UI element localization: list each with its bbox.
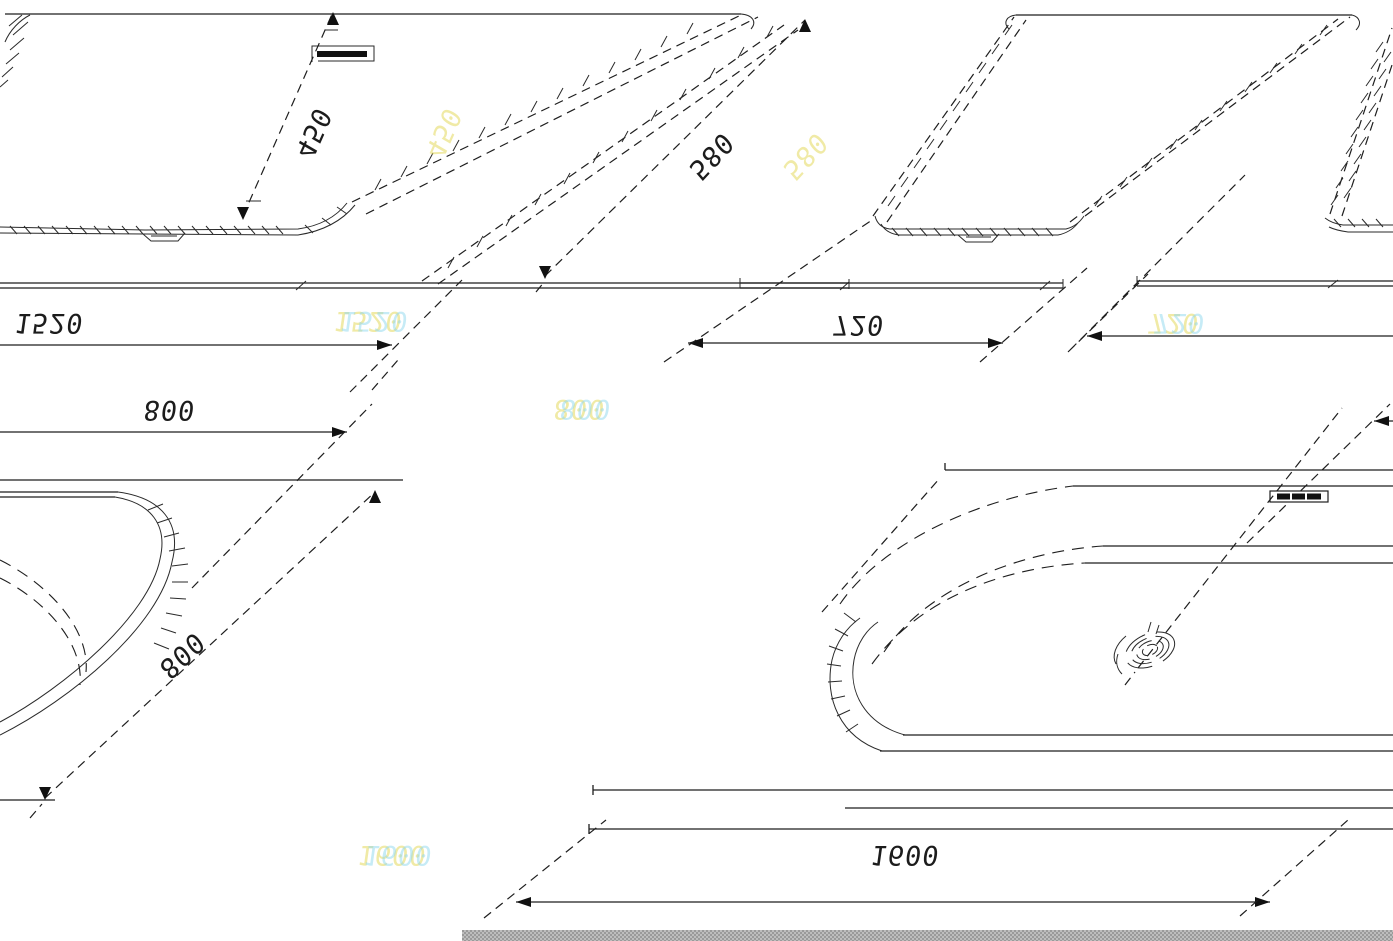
rim-edge-curl xyxy=(741,14,754,29)
dim-580-ghost: 580 xyxy=(777,125,833,186)
left-wall-ticks xyxy=(888,25,1012,206)
inner-rim-top xyxy=(1085,546,1393,563)
dim-1520-ghost-c: 1520 xyxy=(338,305,411,336)
floor-line xyxy=(0,283,849,288)
plan-corner-view: 800 800 800 800 xyxy=(0,393,614,818)
basin-shell-top xyxy=(0,203,347,230)
rim-curls xyxy=(1006,15,1360,30)
corner-curve-outer xyxy=(0,492,175,735)
plan-view: 1600 1600 1600 xyxy=(356,404,1393,918)
inner-rim-curves xyxy=(872,546,1103,664)
dim-800h-ghost-c: 800 xyxy=(558,393,614,424)
dim-800-vertical: 800 xyxy=(0,490,381,818)
dim-450-label: 450 xyxy=(289,101,337,164)
dim-580: 580 580 xyxy=(536,19,833,292)
wall-ticks-2 xyxy=(1344,52,1391,198)
dim-580-label: 580 xyxy=(683,125,739,186)
dim-1600: 1600 1600 1600 xyxy=(356,478,1348,918)
right-wall-band xyxy=(1070,17,1350,222)
dim-720: 720 720 720 xyxy=(664,220,1208,362)
dim-450-ghost: 450 xyxy=(419,101,467,164)
dim-720-ghost-c: 720 xyxy=(1152,307,1208,338)
dim-1600-label: 1600 xyxy=(869,839,942,870)
dim-720-label: 720 xyxy=(831,309,887,340)
end-wall-ticks-1 xyxy=(375,23,693,190)
dim-800v-label: 800 xyxy=(154,625,210,685)
rim-second-curve xyxy=(840,486,1073,604)
rim-bottom-lines xyxy=(589,785,1393,834)
overflow-slot-plan xyxy=(1270,491,1328,502)
floor-line xyxy=(1137,281,1393,286)
end-section-partial-view xyxy=(1068,28,1393,352)
dim-1520: 1520 1520 1520 xyxy=(0,280,462,392)
wall-ticks-1 xyxy=(1331,42,1383,205)
basin-hatch xyxy=(1334,219,1383,227)
left-wall-hatch xyxy=(0,15,28,87)
end-section-view: 720 720 720 xyxy=(664,15,1359,362)
rim-inner-top xyxy=(0,492,118,497)
dim-1520-label: 1520 xyxy=(13,307,86,338)
dim-450: 450 450 xyxy=(237,12,467,220)
dim-1600-ghost-c: 1600 xyxy=(362,839,435,870)
hidden-rim-curves xyxy=(0,560,86,685)
left-wall-band xyxy=(873,17,1026,222)
dim-top-right xyxy=(1247,404,1393,543)
basin-shell-bottom xyxy=(0,205,355,235)
dim-800h-label: 800 xyxy=(142,394,198,425)
endcap-arc-1 xyxy=(853,622,905,735)
bathtub-technical-drawing: 450 450 580 580 1520 1520 1520 xyxy=(0,0,1393,941)
dim-800-horizontal: 800 800 800 xyxy=(0,393,614,588)
drain-plan xyxy=(1114,622,1180,675)
dim-right-partial xyxy=(1068,175,1393,352)
right-wall-ticks xyxy=(1095,25,1327,206)
overflow-slot-section xyxy=(312,46,374,62)
wall-band xyxy=(1330,28,1393,216)
side-section-view: 450 450 580 580 1520 1520 1520 xyxy=(0,12,849,392)
endcap-arc-2 xyxy=(830,618,882,751)
corner-curve-inner xyxy=(0,497,162,722)
drawing-canvas: 450 450 580 580 1520 1520 1520 xyxy=(0,0,1393,941)
inner-rim-bottom xyxy=(880,735,1393,751)
endcap-hatch-fan xyxy=(827,613,858,732)
basin-shell-top xyxy=(875,216,1084,229)
end-wall-band-1 xyxy=(352,15,758,214)
floor-line xyxy=(740,283,1063,288)
page-edge-strip xyxy=(462,930,1393,941)
